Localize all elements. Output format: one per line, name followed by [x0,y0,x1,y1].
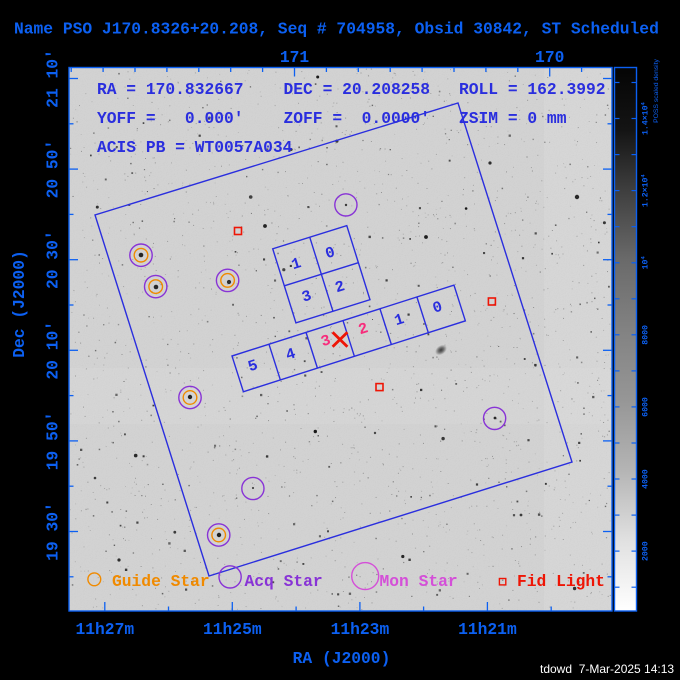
svg-text:11h21m: 11h21m [458,620,517,639]
svg-text:4000: 4000 [642,469,651,489]
svg-text:Guide Star: Guide Star [112,572,210,591]
svg-text:ZSIM = 0 mm: ZSIM = 0 mm [459,109,567,128]
svg-text:ACIS PB = WT0057A034: ACIS PB = WT0057A034 [97,138,293,157]
svg-text:YOFF = 0.000': YOFF = 0.000' [97,109,244,128]
svg-text:6000: 6000 [642,397,651,417]
svg-text:8000: 8000 [642,325,651,345]
svg-text:11h23m: 11h23m [331,620,390,639]
svg-text:11h25m: 11h25m [203,620,262,639]
svg-text:20 10': 20 10' [44,321,63,380]
svg-text:20 30': 20 30' [44,230,63,289]
svg-text:11h27m: 11h27m [75,620,134,639]
svg-text:1.4×104: 1.4×104 [640,102,651,135]
svg-text:tdowd 7-Mar-2025 14:13: tdowd 7-Mar-2025 14:13 [540,662,674,676]
svg-text:Fid Light: Fid Light [517,572,605,591]
svg-text:Name PSO J170.8326+20.208, Seq: Name PSO J170.8326+20.208, Seq # 704958,… [14,20,659,39]
svg-text:DEC = 20.208258: DEC = 20.208258 [284,80,431,99]
svg-text:Mon Star: Mon Star [380,572,458,591]
svg-text:20 50': 20 50' [44,140,63,199]
svg-text:171: 171 [280,48,310,67]
svg-text:RA = 170.832667: RA = 170.832667 [97,80,244,99]
svg-text:POSS scaled density: POSS scaled density [653,58,660,122]
svg-text:Dec (J2000): Dec (J2000) [10,250,29,357]
svg-text:21 10': 21 10' [44,49,63,108]
svg-text:Acq Star: Acq Star [245,572,323,591]
svg-text:170: 170 [535,48,564,67]
svg-text:ROLL = 162.3992: ROLL = 162.3992 [459,80,606,99]
svg-text:2000: 2000 [642,541,651,561]
svg-text:19 30': 19 30' [44,502,63,561]
svg-text:1.2×104: 1.2×104 [640,174,651,207]
svg-text:19 50': 19 50' [44,412,63,471]
svg-text:RA (J2000): RA (J2000) [293,649,391,668]
